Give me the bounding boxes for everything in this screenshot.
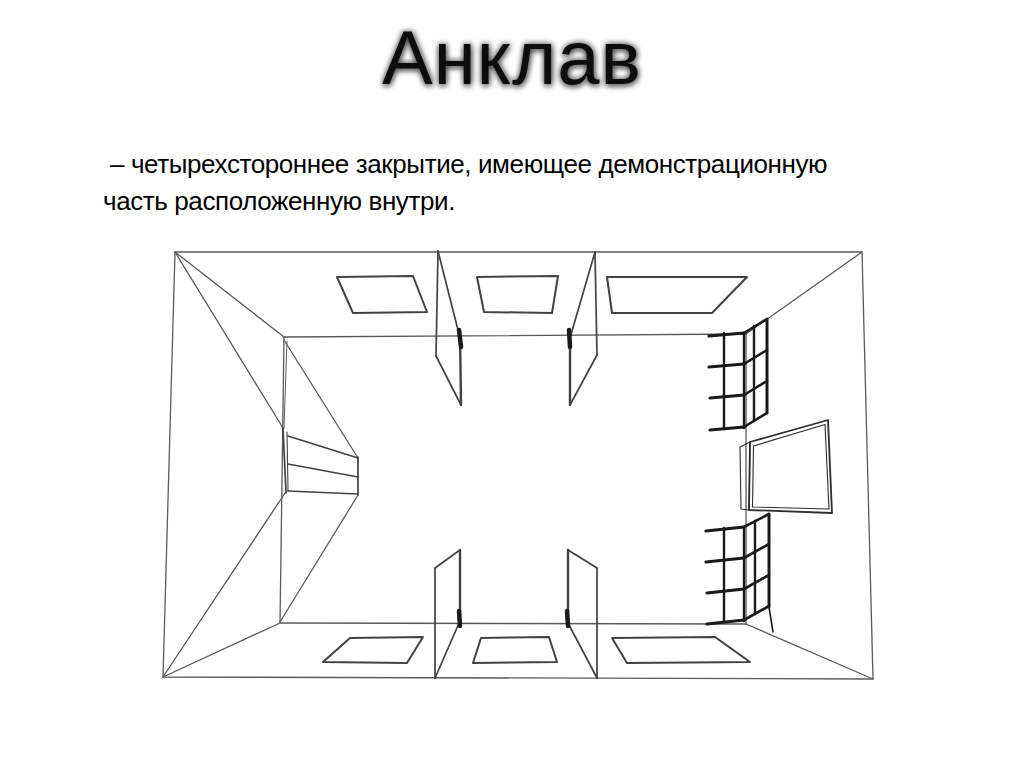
inner-room-frame — [280, 334, 746, 624]
display-screen — [740, 420, 832, 513]
floor-panels — [323, 637, 750, 663]
wall-fold-lines — [163, 252, 873, 679]
partition-bottom-right — [567, 550, 597, 678]
ceiling-panel-left — [337, 276, 427, 313]
ceiling-panels — [337, 276, 747, 313]
partition-bottom-left — [435, 550, 460, 678]
partition-top-left — [436, 251, 461, 405]
left-wall-steps — [283, 428, 358, 495]
ceiling-panel-center — [477, 276, 558, 313]
partition-walls — [435, 251, 597, 678]
slide-canvas: Анклав – четырехстороннее закрытие, имею… — [0, 0, 1024, 767]
shelf-rack-bottom — [706, 514, 773, 632]
floor-panel-right — [612, 637, 750, 663]
floor-panel-center — [473, 637, 557, 663]
enclave-diagram — [0, 0, 1024, 767]
floor-panel-left — [323, 637, 423, 663]
shelf-rack-top — [709, 319, 767, 430]
outer-frame — [163, 252, 873, 679]
ceiling-panel-right — [607, 277, 747, 313]
partition-top-right — [569, 252, 597, 405]
